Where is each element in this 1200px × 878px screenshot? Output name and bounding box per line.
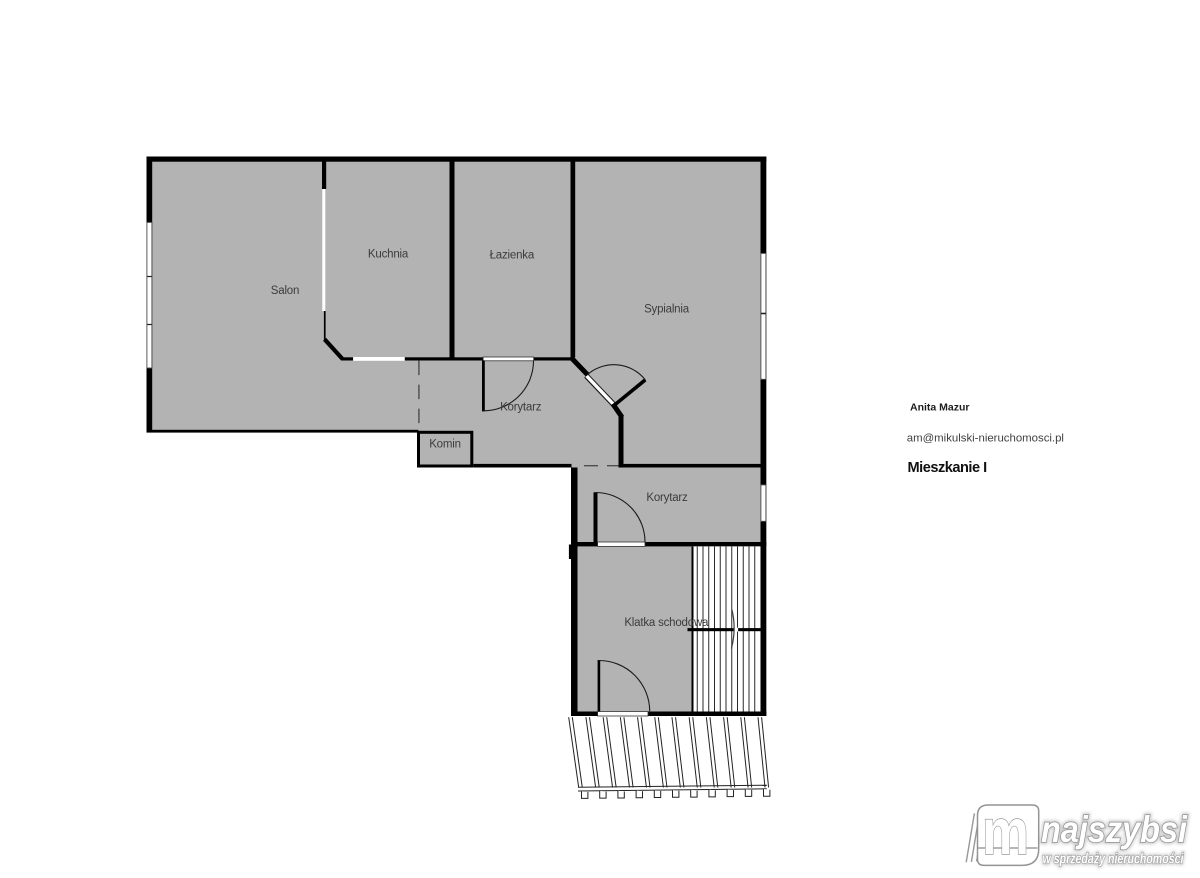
svg-text:Komin: Komin xyxy=(429,438,461,450)
svg-text:am@mikulski-nieruchomosci.pl: am@mikulski-nieruchomosci.pl xyxy=(907,433,1064,445)
svg-text:w sprzedaży nieruchomości: w sprzedaży nieruchomości xyxy=(1043,852,1185,868)
svg-text:Sypialnia: Sypialnia xyxy=(644,303,690,315)
svg-text:Korytarz: Korytarz xyxy=(646,492,688,504)
svg-text:Anita Mazur: Anita Mazur xyxy=(910,402,970,414)
svg-text:Klatka schodowa: Klatka schodowa xyxy=(624,617,709,629)
svg-text:Mieszkanie I: Mieszkanie I xyxy=(908,460,988,476)
svg-text:Salon: Salon xyxy=(271,285,299,297)
svg-text:Kuchnia: Kuchnia xyxy=(368,249,409,261)
svg-text:Łazienka: Łazienka xyxy=(490,249,535,261)
svg-text:m: m xyxy=(982,795,1029,868)
svg-text:Korytarz: Korytarz xyxy=(500,402,542,414)
svg-text:najszybsi: najszybsi xyxy=(1041,808,1188,850)
